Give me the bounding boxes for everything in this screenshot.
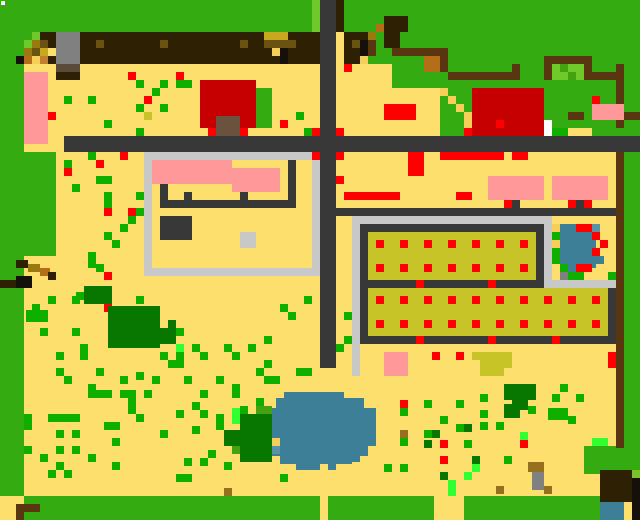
tile-olive-wood — [32, 40, 40, 48]
tile-bright-sprout — [448, 480, 456, 496]
tile-pale-sand — [440, 88, 448, 96]
tile-red-flower — [448, 320, 456, 328]
tile-red-flower — [376, 264, 384, 272]
tile-leaf-green — [568, 72, 576, 80]
tile-fence-brown — [392, 48, 448, 56]
tile-bright-sprout — [232, 408, 240, 424]
tile-dark-olive — [264, 40, 296, 48]
tile-red-flower — [208, 128, 216, 136]
tile-dark-olive — [40, 40, 48, 48]
tile-red-flower — [592, 320, 600, 328]
tile-plant — [400, 464, 408, 472]
tile-plant — [104, 192, 112, 208]
tile-grass — [24, 496, 320, 520]
tile-plant — [200, 390, 208, 398]
tile-fence-brown — [624, 112, 640, 120]
tile-light-wall — [360, 216, 552, 224]
tile-plant — [216, 414, 224, 430]
tile-crop-soil — [480, 368, 504, 376]
tile-log-orange — [376, 24, 384, 32]
tile-red-flower — [544, 320, 552, 328]
tile-plant — [56, 462, 64, 470]
tile-plant — [160, 80, 168, 88]
tile-dark-olive — [352, 40, 360, 48]
tile-red-flower — [568, 200, 576, 208]
tile-plant — [456, 400, 464, 408]
tile-log-orange — [424, 56, 440, 72]
tile-plant — [288, 312, 296, 320]
tile-road-asphalt — [240, 192, 248, 200]
tile-plant — [192, 344, 200, 352]
tile-red-flower — [424, 320, 432, 328]
tile-plant — [568, 416, 576, 424]
tile-field-sand — [568, 128, 592, 136]
tile-grass — [0, 256, 24, 496]
tile-plant — [256, 398, 264, 406]
tile-plant — [184, 376, 192, 384]
tile-leaf-green — [560, 64, 568, 72]
tile-fence-brown — [368, 40, 376, 56]
tile-red-flower — [544, 296, 552, 304]
tile-red-flower — [608, 352, 616, 368]
tile-plant — [136, 104, 144, 112]
tile-red-flower — [440, 152, 480, 160]
tile-pink-roof — [152, 160, 160, 184]
tile-plant — [200, 410, 208, 418]
tile-stump-brown — [224, 488, 232, 496]
tile-pink-roof — [232, 168, 280, 192]
tile-plant — [96, 368, 104, 376]
tile-plant — [208, 450, 216, 458]
tile-pink-roof — [384, 352, 408, 376]
tile-plant — [560, 264, 568, 272]
tile-red-flower — [520, 264, 528, 272]
tile-red-flower — [280, 120, 288, 128]
tile-plant — [72, 430, 80, 438]
tile-plant — [296, 368, 312, 376]
tile-dark-wood — [384, 16, 408, 32]
tile-red-flower — [600, 240, 608, 248]
tile-plant — [424, 400, 432, 408]
tile-plant — [424, 430, 432, 438]
tile-red-flower — [176, 72, 184, 80]
tile-red-flower — [592, 296, 600, 304]
tile-red-flower — [512, 152, 528, 160]
tile-road-asphalt — [336, 208, 616, 216]
tile-light-grass — [32, 32, 40, 40]
tile-road-asphalt — [368, 280, 544, 288]
tile-grass — [464, 496, 600, 520]
tile-plant — [528, 406, 536, 414]
tile-road-asphalt — [184, 192, 192, 200]
tile-road-asphalt — [360, 224, 368, 344]
tile-white — [1, 1, 5, 5]
tile-red-flower — [488, 336, 496, 344]
tile-red-flower — [584, 200, 592, 208]
tile-hay-yellow — [40, 48, 48, 56]
tile-stump-brown — [544, 486, 552, 494]
tile-log-orange — [24, 56, 32, 64]
tile-red-flower — [400, 296, 408, 304]
tile-red-flower — [384, 104, 416, 120]
tile-red-flower — [400, 264, 408, 272]
tile-plant — [136, 128, 144, 136]
tile-plant — [280, 304, 288, 312]
tile-red-flower — [376, 320, 384, 328]
tile-pale-sand — [456, 104, 464, 112]
tile-plant — [136, 80, 144, 88]
tile-red-flower — [464, 128, 472, 136]
tile-plant — [576, 394, 584, 402]
tile-fence-brown — [544, 56, 592, 64]
tile-road-asphalt — [576, 200, 584, 208]
tile-red-flower — [472, 296, 480, 304]
tile-red-flower — [400, 240, 408, 248]
tile-red-flower — [424, 264, 432, 272]
tile-grass — [0, 40, 24, 256]
tile-plant — [56, 446, 64, 454]
tile-red-flower — [344, 192, 400, 200]
tile-plant — [552, 232, 560, 240]
tile-light-grass — [24, 40, 32, 48]
tile-dark-bush — [432, 430, 440, 438]
tile-red-flower — [472, 264, 480, 272]
tile-water — [592, 256, 604, 264]
tile-olive-wood — [24, 48, 32, 56]
tile-plant — [344, 312, 352, 320]
tile-plant — [344, 336, 352, 344]
tile-plant — [184, 458, 192, 466]
tile-plant — [64, 470, 72, 478]
tile-plant — [104, 390, 112, 398]
tile-pink-roof — [592, 104, 624, 120]
tile-red-flower — [592, 96, 600, 104]
tile-plant — [480, 410, 488, 418]
tile-red-flower — [496, 296, 504, 304]
tile-plant — [176, 352, 184, 368]
tile-plant — [120, 224, 128, 232]
tile-dark-bush — [160, 328, 176, 344]
tile-plant — [40, 328, 48, 336]
tile-stone-gray — [560, 272, 568, 280]
tile-field-sand — [624, 502, 632, 520]
tile-red-flower — [312, 152, 320, 160]
tile-light-wall — [144, 268, 320, 276]
tile-plant — [280, 474, 288, 482]
tile-deep-shadow — [16, 276, 32, 288]
tile-plant — [176, 328, 184, 336]
tile-red-flower — [456, 192, 472, 200]
tile-plant — [560, 384, 568, 392]
tile-light-wall — [144, 152, 312, 160]
tile-red-flower — [480, 152, 504, 160]
tile-dark-wood — [56, 72, 80, 80]
tile-pale-sand — [464, 120, 472, 128]
tile-red-flower — [440, 456, 448, 464]
tile-plant — [24, 446, 32, 454]
tile-plant — [480, 394, 488, 402]
tile-roof-eave — [56, 64, 80, 72]
tile-dark-bush — [472, 456, 480, 464]
tile-fence-brown — [448, 72, 480, 80]
tile-plant — [72, 328, 80, 336]
tile-road-asphalt — [512, 200, 520, 208]
tile-pink-roof — [488, 176, 544, 200]
tile-light-wall — [544, 216, 552, 288]
tile-plant — [48, 414, 80, 422]
tile-plant — [240, 406, 248, 414]
tile-grass — [24, 152, 56, 256]
tile-white — [544, 120, 552, 136]
tile-red-flower — [336, 152, 344, 160]
tile-pink-roof — [24, 72, 48, 144]
tile-fence-brown — [584, 64, 592, 80]
tile-road-asphalt — [160, 216, 192, 240]
tile-red-flower — [520, 240, 528, 248]
tile-plant — [24, 414, 32, 430]
tile-plant — [136, 414, 144, 422]
tile-plant — [88, 152, 96, 160]
tile-plant — [400, 438, 408, 446]
tile-water — [276, 398, 364, 408]
tile-deep-shadow — [280, 48, 288, 64]
tile-pale-sand — [552, 240, 560, 248]
tile-plant — [608, 272, 616, 280]
tile-light-wall — [240, 232, 256, 248]
tile-fence-brown — [544, 64, 552, 80]
tile-dark-bush — [240, 414, 272, 462]
tile-plant — [64, 160, 72, 168]
tile-plant — [152, 376, 160, 384]
tile-plant — [224, 344, 232, 352]
tile-bright-sprout — [520, 432, 528, 440]
tile-road-asphalt — [160, 200, 296, 208]
tile-olive-wood — [28, 264, 40, 272]
tile-dark-olive — [240, 40, 248, 48]
tile-plant — [64, 376, 72, 384]
tile-plant — [88, 260, 96, 268]
tile-fence-brown — [16, 504, 40, 512]
tile-red-flower — [488, 280, 496, 288]
tile-bright-sprout — [464, 472, 472, 480]
tile-plant — [176, 410, 184, 418]
tile-plant — [80, 344, 88, 360]
tile-plant — [552, 394, 560, 402]
tile-red-flower — [48, 112, 56, 120]
tile-red-flower — [376, 296, 384, 304]
tile-plant — [176, 474, 192, 482]
tile-stone-gray — [532, 472, 544, 490]
tile-red-flower — [568, 296, 576, 304]
tile-plant — [232, 352, 240, 360]
tile-fence-brown — [440, 56, 448, 72]
tile-dark-bush — [424, 440, 432, 448]
tile-plant — [120, 390, 128, 398]
tile-pale-sand — [32, 56, 40, 64]
tile-dark-wood — [336, 0, 344, 32]
tile-red-flower — [448, 296, 456, 304]
tile-plant — [548, 408, 568, 420]
tile-field-sand — [48, 48, 56, 56]
tile-plant — [40, 454, 48, 462]
tile-water — [328, 462, 336, 470]
tile-plant — [256, 368, 264, 376]
tile-pink-roof — [552, 176, 608, 200]
tile-water — [600, 502, 624, 520]
tile-dark-bush — [108, 306, 160, 348]
tile-red-flower — [376, 240, 384, 248]
farm-map — [0, 0, 640, 520]
tile-dark-bush — [224, 430, 240, 446]
tile-red-flower — [496, 320, 504, 328]
tile-plant — [304, 296, 312, 304]
tile-plant — [200, 352, 208, 360]
tile-red-flower — [496, 264, 504, 272]
tile-red-flower — [552, 336, 560, 344]
tile-leaf-lime — [632, 470, 640, 478]
tile-bright-sprout — [176, 344, 184, 352]
tile-red-flower — [416, 336, 424, 344]
tile-plant — [120, 376, 128, 384]
tile-red-flower — [408, 152, 424, 176]
tile-hay-yellow — [264, 32, 288, 40]
tile-plant — [76, 292, 84, 300]
tile-fence-brown — [512, 64, 520, 72]
tile-plant — [464, 440, 472, 448]
tile-tan-dirt — [40, 56, 48, 64]
tile-bright-sprout — [592, 438, 608, 446]
tile-plant — [176, 80, 192, 88]
tile-plant — [72, 446, 80, 454]
tile-plant — [152, 88, 160, 96]
tile-red-flower — [416, 280, 424, 288]
tile-leaf-green — [256, 406, 272, 414]
tile-plant — [232, 390, 240, 398]
tile-red-flower — [576, 224, 592, 232]
tile-dark-wood — [48, 56, 56, 64]
tile-red-flower — [504, 200, 512, 208]
tile-dark-wood — [384, 32, 400, 48]
tile-pale-sand — [272, 438, 280, 446]
tile-plant — [200, 458, 208, 466]
tile-fence-brown — [16, 512, 24, 520]
tile-pale-sand — [552, 224, 560, 232]
tile-red-flower — [424, 296, 432, 304]
tile-light-wall — [312, 160, 320, 276]
tile-plant — [136, 208, 144, 216]
tile-fence-brown — [568, 112, 584, 120]
tile-red-flower — [128, 208, 136, 216]
tile-red-flower — [120, 152, 128, 160]
tile-bright-sprout — [472, 464, 480, 472]
tile-light-wall — [144, 152, 152, 276]
tile-plant — [136, 296, 144, 304]
tile-fence-brown — [480, 72, 520, 80]
tile-red-flower — [592, 248, 600, 256]
tile-red-flower — [568, 320, 576, 328]
tile-plant — [136, 192, 144, 200]
tile-water-light — [272, 446, 280, 454]
tile-dark-wood — [0, 280, 16, 288]
tile-grass — [328, 496, 434, 520]
tile-red-flower — [64, 168, 72, 176]
tile-crop-soil — [480, 352, 512, 368]
tile-plant — [112, 240, 120, 248]
tile-plant — [456, 424, 464, 432]
tile-plant — [128, 216, 136, 224]
tile-pale-sand — [272, 48, 280, 56]
tile-red-flower — [336, 176, 344, 184]
tile-light-wall — [352, 216, 360, 376]
tile-plant — [48, 470, 56, 478]
tile-red-flower — [96, 160, 104, 168]
tile-dark-bush — [504, 404, 520, 418]
tile-dark-wood — [48, 272, 56, 280]
tile-red-flower — [104, 208, 112, 216]
tile-red-flower — [496, 120, 504, 128]
tile-red-flower — [336, 128, 344, 136]
tile-leaf-green — [232, 446, 240, 454]
tile-red-flower — [520, 320, 528, 328]
tile-plant — [400, 408, 408, 416]
tile-plant — [480, 422, 488, 430]
tile-dark-bush — [440, 472, 448, 480]
tile-grass — [624, 152, 640, 452]
tile-plant — [248, 344, 256, 352]
tile-dark-bush — [84, 286, 112, 304]
tile-red-flower — [312, 128, 320, 136]
tile-road-asphalt — [160, 184, 168, 200]
tile-water — [272, 408, 376, 424]
tile-crop-soil — [144, 112, 152, 120]
tile-plant — [304, 128, 312, 136]
tile-plant — [552, 248, 560, 256]
tile-plant — [136, 372, 144, 380]
tile-plant — [552, 128, 568, 136]
tile-plant — [88, 390, 104, 398]
tile-red-flower — [104, 272, 112, 280]
tile-plant — [264, 336, 272, 344]
tile-plant — [160, 104, 168, 112]
tile-light-grass — [312, 0, 320, 32]
tile-red-flower — [456, 352, 464, 360]
tile-door-wood — [216, 128, 240, 136]
tile-plant — [64, 96, 72, 104]
tile-grass — [256, 88, 272, 128]
tile-plant — [192, 402, 200, 410]
tile-water — [280, 456, 352, 464]
tile-road-asphalt — [536, 232, 544, 288]
tile-red-flower — [472, 240, 480, 248]
tile-plant — [216, 376, 224, 384]
tile-dark-olive — [160, 40, 168, 48]
tile-red-flower — [144, 96, 152, 104]
tile-plant — [496, 422, 504, 430]
tile-red-flower — [240, 128, 248, 136]
tile-red-flower — [592, 232, 600, 240]
tile-dark-olive — [96, 40, 104, 48]
tile-plant — [440, 416, 448, 424]
tile-water — [352, 454, 360, 462]
tile-red-flower — [440, 440, 448, 448]
tile-red-flower — [584, 264, 592, 272]
tile-deep-shadow — [16, 56, 24, 64]
tile-red-flower — [448, 240, 456, 248]
tile-plant — [104, 120, 112, 128]
tile-stump-brown — [496, 486, 504, 494]
tile-plant — [144, 390, 152, 398]
tile-crop-soil — [472, 352, 480, 360]
